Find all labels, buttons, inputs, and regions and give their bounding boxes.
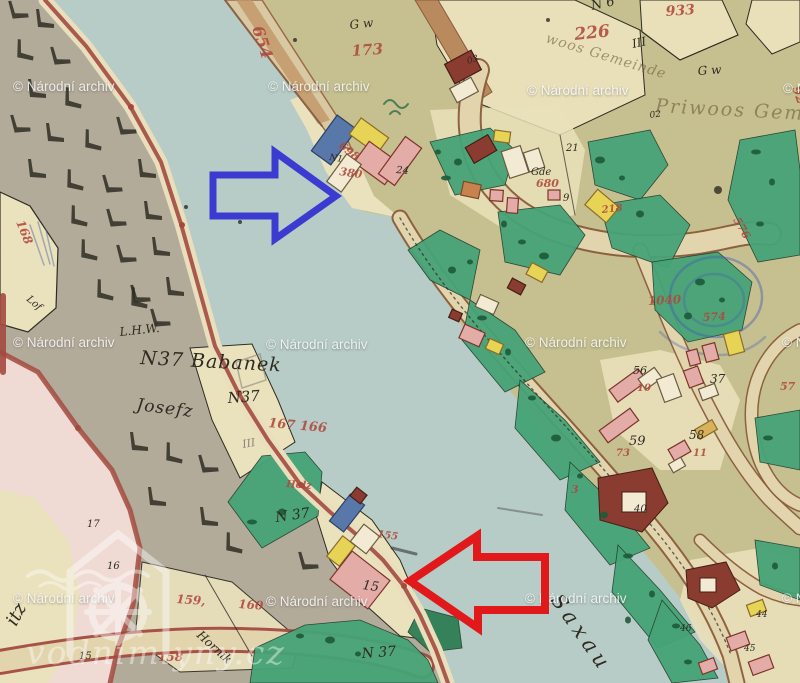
archive-watermark: © Národní archiv [782,591,800,606]
tree-blob [636,211,644,218]
map-label: 45 [743,644,756,654]
map-label: 11 [693,448,707,459]
map-label: 173 [351,40,383,60]
map-viewport: 654G w173226933N 6III03G w0292Priwoos Ge… [0,0,800,683]
tree-blob [769,179,775,186]
tree-blob [672,624,680,629]
map-label: 218 [600,203,623,216]
tree-blob [600,512,608,519]
archive-watermark: © Národní archiv [782,335,800,350]
map-label: 10 [637,383,651,394]
building [461,181,482,198]
building [490,190,504,202]
tree-blob [477,316,487,321]
tree-blob [684,313,692,320]
map-label: 73 [616,448,630,459]
map-label: 574 [702,310,726,324]
archive-watermark: © Národní archiv [783,81,800,96]
tree-blob [695,279,705,286]
map-label: 680 [536,177,559,190]
map-label: 3 [571,483,579,496]
building [548,190,560,200]
boundary-knob [128,104,134,110]
tree-blob [619,176,625,181]
map-label: 160 [238,597,265,613]
tree-blob [623,554,633,559]
archive-watermark: © Národní archiv [527,83,629,98]
archive-watermark: © Národní archiv [525,335,627,350]
boundary-knob [401,583,407,589]
tree-blob [454,159,462,166]
tree-blob [355,652,361,657]
archive-watermark: © Národní archiv [266,594,368,609]
logo-wheel-hub [112,606,124,618]
map-label: 1040 [647,292,682,308]
tree-blob [441,176,451,181]
map-label: 16 [107,561,120,572]
ink-dot [238,220,242,224]
tree-blob [518,240,526,245]
map-label: 56 [633,364,647,377]
map-label: 57 [780,380,796,393]
tree-blob [505,349,511,356]
map-label: 24 [395,165,409,177]
tree-blob [551,435,561,442]
ink-dot [293,38,297,42]
map-label: N 37 [360,644,397,662]
map-label: N37 [226,387,261,407]
boundary-knob [75,425,81,431]
green-parcel [755,410,800,470]
tree-blob [772,563,778,570]
building [493,130,510,143]
map-label: 37 [710,372,726,386]
building [506,198,518,214]
ink-dot [184,205,188,209]
map-label: 58 [689,428,705,442]
tree-blob [528,396,536,401]
map-label: 46 [679,624,692,634]
historic-cadastral-map: 654G w173226933N 6III03G w0292Priwoos Ge… [0,0,800,683]
map-label: 15 [361,578,379,595]
tree-blob [501,221,507,228]
tree-blob [684,660,692,665]
map-label: 59 [629,434,646,449]
archive-watermark: © Národní archiv [266,337,368,352]
archive-watermark: © Národní archiv [525,591,627,606]
tree-blob [539,253,549,260]
archive-watermark: © Národní archiv [13,79,115,94]
map-label: 44 [755,610,768,620]
tree-blob [719,298,725,303]
map-label: N1 [328,153,344,165]
courtyard-notch-2 [700,578,716,592]
tree-blob [467,260,473,265]
map-label: 17 [87,519,100,530]
tree-blob [435,150,441,155]
boundary-knob [179,222,185,228]
map-label: III [240,436,257,451]
archive-watermark: © Národní archiv [13,335,115,350]
ink-dot [714,186,722,194]
map-label: G w [349,16,375,32]
map-label: Holz [285,479,313,492]
tree-blob [625,617,631,624]
tree-blob [325,637,335,644]
map-label: G w [697,62,722,78]
map-label: 21 [565,143,579,154]
logo-text: vodnimlyny.cz [26,633,286,672]
archive-watermark: © Národní archiv [268,79,370,94]
tree-blob [649,591,655,598]
map-label: 159, [176,592,206,608]
tree-blob [756,222,764,227]
tree-blob [247,520,257,525]
ink-dot [546,18,550,22]
tree-blob [595,157,605,164]
tree-blob [763,436,773,441]
map-label: 40 [633,504,647,515]
tree-blob [448,267,456,274]
tree-blob [751,150,761,155]
map-label: 933 [665,2,696,20]
map-label: 9 [563,193,570,204]
tree-blob [296,634,304,639]
tree-blob [577,474,583,479]
